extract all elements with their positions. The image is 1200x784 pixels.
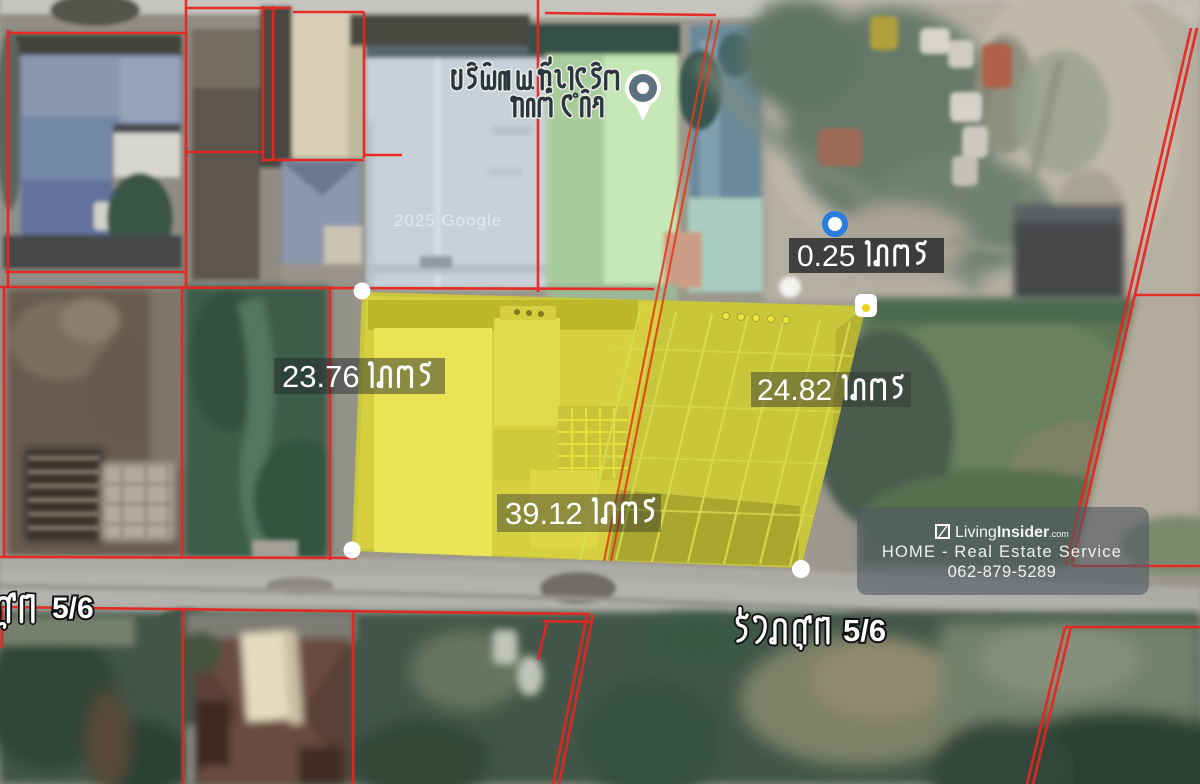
svg-text:24.82: 24.82: [757, 374, 832, 407]
svg-text:062-879-5289: 062-879-5289: [948, 563, 1057, 581]
svg-text:5/6: 5/6: [843, 613, 886, 648]
svg-text:HOME - Real Estate Service: HOME - Real Estate Service: [882, 543, 1122, 561]
svg-text:39.12: 39.12: [505, 496, 583, 531]
svg-text:2025 Google: 2025 Google: [394, 211, 502, 230]
svg-text:0.25: 0.25: [797, 240, 855, 273]
svg-text:5/6: 5/6: [52, 592, 94, 625]
svg-text:23.76: 23.76: [282, 359, 360, 394]
